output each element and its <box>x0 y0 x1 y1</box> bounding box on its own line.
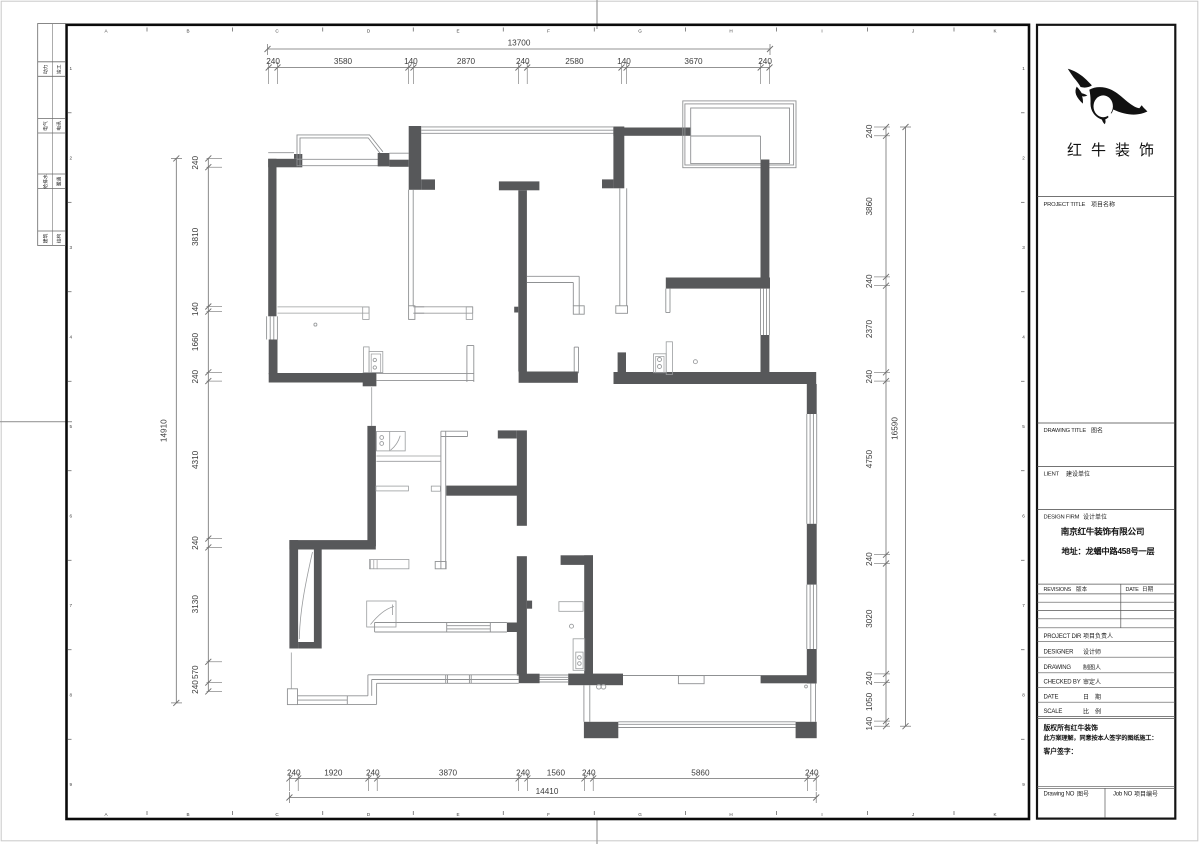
svg-text:DRAWING: DRAWING <box>1044 665 1072 671</box>
svg-text:240: 240 <box>865 671 874 685</box>
svg-text:比 例: 比 例 <box>1083 707 1101 715</box>
svg-text:DESIGNER: DESIGNER <box>1044 650 1075 656</box>
svg-text:2370: 2370 <box>865 319 874 338</box>
svg-text:I: I <box>821 812 822 817</box>
svg-text:140: 140 <box>617 57 631 66</box>
svg-text:240: 240 <box>865 274 874 288</box>
svg-text:Drawing NO: Drawing NO <box>1044 792 1075 798</box>
svg-text:项目编号: 项目编号 <box>1134 790 1158 798</box>
svg-text:240: 240 <box>865 124 874 138</box>
svg-text:E: E <box>456 812 459 817</box>
svg-text:审定人: 审定人 <box>1083 678 1101 686</box>
svg-text:4310: 4310 <box>191 450 200 469</box>
svg-text:DATE: DATE <box>1126 587 1140 593</box>
svg-text:F: F <box>547 29 550 34</box>
svg-text:G: G <box>638 812 642 817</box>
svg-text:图号: 图号 <box>1077 791 1089 798</box>
svg-text:1: 1 <box>1022 66 1025 71</box>
svg-text:B: B <box>186 812 189 817</box>
svg-text:1920: 1920 <box>324 768 343 777</box>
svg-text:DRAWING TITLE: DRAWING TITLE <box>1044 428 1087 434</box>
svg-text:版权所有红牛装饰: 版权所有红牛装饰 <box>1043 723 1099 732</box>
svg-text:16590: 16590 <box>890 417 899 440</box>
svg-text:竣工: 竣工 <box>55 64 62 74</box>
svg-text:1560: 1560 <box>547 768 566 777</box>
svg-text:PROJECT DIR: PROJECT DIR <box>1044 634 1083 640</box>
svg-text:5: 5 <box>70 424 73 429</box>
svg-text:240: 240 <box>758 57 772 66</box>
svg-text:7: 7 <box>70 603 73 608</box>
svg-text:动力: 动力 <box>42 64 49 74</box>
svg-text:14910: 14910 <box>160 419 169 442</box>
svg-text:240: 240 <box>191 680 200 694</box>
svg-text:5: 5 <box>1022 424 1025 429</box>
svg-text:3: 3 <box>70 245 73 250</box>
svg-text:3: 3 <box>1022 245 1025 250</box>
svg-text:240: 240 <box>366 768 380 777</box>
svg-text:3870: 3870 <box>439 768 458 777</box>
svg-text:8: 8 <box>1022 693 1025 698</box>
svg-text:140: 140 <box>404 57 418 66</box>
svg-text:J: J <box>912 29 914 34</box>
svg-text:2: 2 <box>70 156 73 161</box>
svg-text:3020: 3020 <box>865 609 874 628</box>
svg-text:H: H <box>729 29 732 34</box>
svg-text:1: 1 <box>70 66 73 71</box>
svg-text:建筑: 建筑 <box>42 234 49 244</box>
svg-text:5860: 5860 <box>691 768 710 777</box>
svg-text:南京红牛装饰有限公司: 南京红牛装饰有限公司 <box>1061 526 1144 537</box>
svg-text:240: 240 <box>865 552 874 566</box>
svg-text:4: 4 <box>70 335 73 340</box>
svg-text:6: 6 <box>70 514 73 519</box>
svg-text:电讯: 电讯 <box>55 121 62 131</box>
svg-text:暖通: 暖通 <box>55 177 62 187</box>
svg-text:日期: 日期 <box>1142 586 1154 593</box>
svg-text:DESIGN FIRM: DESIGN FIRM <box>1044 515 1080 521</box>
svg-text:8: 8 <box>70 693 73 698</box>
svg-text:2580: 2580 <box>565 57 584 66</box>
svg-text:240: 240 <box>582 768 596 777</box>
svg-text:CHECKED BY: CHECKED BY <box>1044 680 1081 686</box>
svg-text:4750: 4750 <box>865 450 874 469</box>
svg-text:DATE: DATE <box>1044 695 1059 701</box>
svg-text:客户签字：: 客户签字： <box>1043 747 1078 756</box>
svg-text:4: 4 <box>1022 335 1025 340</box>
svg-text:6: 6 <box>1022 514 1025 519</box>
svg-text:140: 140 <box>191 302 200 316</box>
svg-text:电气: 电气 <box>42 121 49 131</box>
svg-text:I: I <box>821 29 822 34</box>
svg-text:240: 240 <box>805 768 819 777</box>
svg-text:H: H <box>729 812 732 817</box>
svg-text:240: 240 <box>865 369 874 383</box>
svg-text:9: 9 <box>1022 782 1025 787</box>
svg-text:B: B <box>186 29 189 34</box>
svg-text:此方案理解，同意按本人签字的图纸施工：: 此方案理解，同意按本人签字的图纸施工： <box>1044 734 1158 742</box>
svg-text:240: 240 <box>516 57 530 66</box>
svg-text:设计师: 设计师 <box>1083 648 1101 656</box>
svg-text:570: 570 <box>191 665 200 679</box>
svg-text:3580: 3580 <box>334 57 353 66</box>
svg-text:240: 240 <box>287 768 301 777</box>
svg-text:SCALE: SCALE <box>1044 709 1063 715</box>
svg-text:Job NO: Job NO <box>1113 792 1133 798</box>
svg-text:设计单位: 设计单位 <box>1083 513 1107 521</box>
svg-text:地址：龙蟠中路458号一层: 地址：龙蟠中路458号一层 <box>1062 546 1155 556</box>
svg-text:3130: 3130 <box>191 595 200 614</box>
svg-text:F: F <box>547 812 550 817</box>
svg-text:2870: 2870 <box>457 57 476 66</box>
svg-text:版本: 版本 <box>1076 585 1088 593</box>
svg-text:240: 240 <box>191 369 200 383</box>
svg-text:给排水: 给排水 <box>42 174 49 189</box>
svg-text:E: E <box>456 29 459 34</box>
svg-text:图名: 图名 <box>1091 427 1103 435</box>
svg-text:REVISIONS: REVISIONS <box>1044 587 1072 593</box>
svg-text:140: 140 <box>865 716 874 730</box>
svg-text:2: 2 <box>1022 156 1025 161</box>
svg-text:G: G <box>638 29 642 34</box>
svg-text:240: 240 <box>266 57 280 66</box>
svg-text:项目名称: 项目名称 <box>1091 201 1115 209</box>
svg-text:1050: 1050 <box>865 692 874 711</box>
svg-text:3860: 3860 <box>865 197 874 216</box>
svg-text:14410: 14410 <box>536 787 559 796</box>
svg-text:240: 240 <box>191 156 200 170</box>
svg-text:7: 7 <box>1022 603 1025 608</box>
svg-text:240: 240 <box>516 768 530 777</box>
svg-text:J: J <box>912 812 914 817</box>
svg-text:结构: 结构 <box>55 234 62 244</box>
svg-text:13700: 13700 <box>508 39 531 48</box>
svg-text:3670: 3670 <box>684 57 703 66</box>
svg-text:建设单位: 建设单位 <box>1066 470 1090 478</box>
svg-text:1660: 1660 <box>191 332 200 351</box>
svg-text:LIENT: LIENT <box>1044 472 1060 478</box>
svg-text:PROJECT TITLE: PROJECT TITLE <box>1044 202 1086 208</box>
svg-text:240: 240 <box>191 536 200 550</box>
svg-text:3810: 3810 <box>191 227 200 246</box>
svg-text:制图人: 制图人 <box>1083 663 1101 671</box>
svg-text:日 期: 日 期 <box>1083 693 1101 701</box>
svg-text:9: 9 <box>70 782 73 787</box>
svg-text:项目负责人: 项目负责人 <box>1083 632 1113 640</box>
